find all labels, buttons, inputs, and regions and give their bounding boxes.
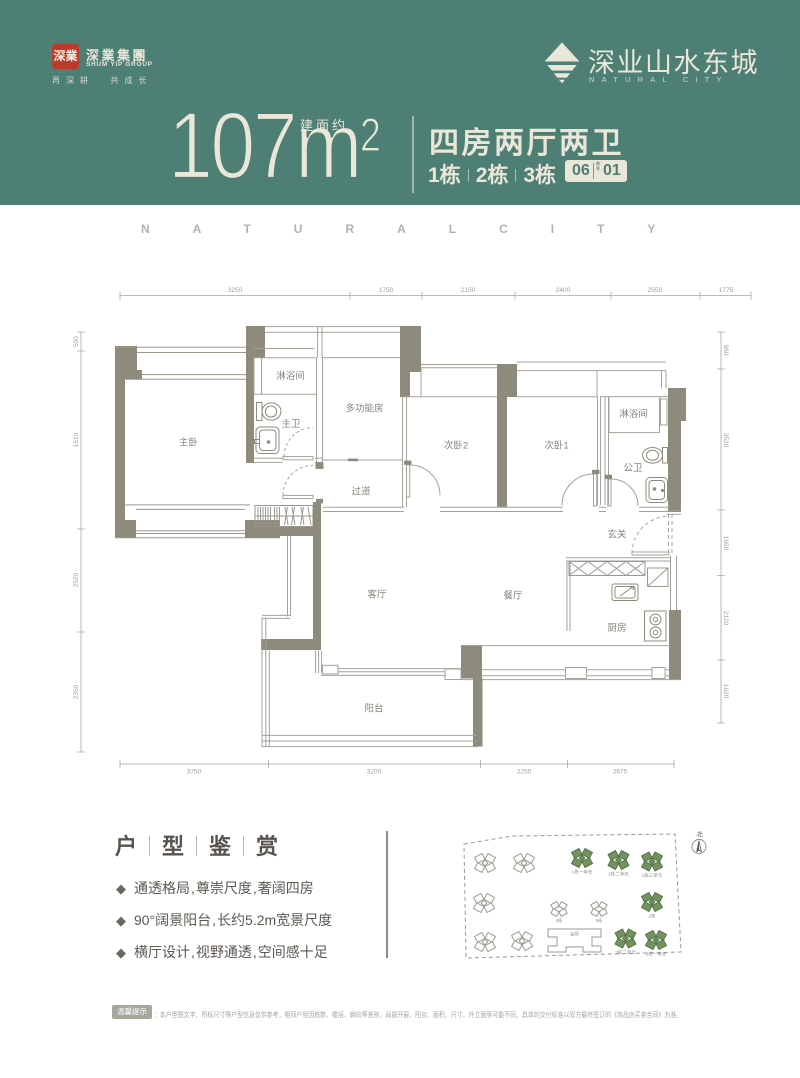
svg-text:3栋二单元: 3栋二单元 (615, 949, 636, 956)
svg-text:淋浴间: 淋浴间 (619, 408, 648, 420)
svg-text:2250: 2250 (517, 769, 532, 776)
svg-text:次卧2: 次卧2 (444, 440, 468, 452)
svg-text:阳台: 阳台 (364, 703, 383, 715)
svg-text:2350: 2350 (73, 684, 80, 699)
svg-text:1775: 1775 (719, 287, 734, 294)
svg-text:3520: 3520 (722, 433, 729, 448)
svg-text:2栋: 2栋 (648, 913, 656, 920)
svg-text:3栋一单元: 3栋一单元 (646, 951, 667, 958)
svg-text:过道: 过道 (351, 486, 371, 498)
svg-text:1650: 1650 (722, 536, 729, 551)
svg-text:3250: 3250 (228, 287, 243, 294)
svg-text:1栋二单元: 1栋二单元 (608, 871, 629, 878)
svg-text:2520: 2520 (73, 572, 80, 587)
svg-text:多功能房: 多功能房 (345, 403, 383, 415)
svg-text:1750: 1750 (379, 287, 394, 294)
svg-text:淋浴间: 淋浴间 (276, 370, 305, 382)
svg-text:公卫: 公卫 (623, 463, 643, 474)
svg-text:主卧: 主卧 (179, 437, 199, 449)
svg-text:2550: 2550 (648, 287, 663, 294)
svg-text:北: 北 (696, 830, 705, 839)
svg-text:次卧1: 次卧1 (544, 440, 568, 452)
svg-text:1510: 1510 (73, 432, 80, 447)
svg-text:4栋: 4栋 (555, 917, 563, 924)
svg-text:500: 500 (73, 336, 80, 347)
svg-text:客厅: 客厅 (367, 589, 387, 601)
svg-text:2675: 2675 (613, 769, 628, 776)
svg-text:5栋: 5栋 (595, 917, 603, 924)
svg-text:3750: 3750 (187, 769, 202, 776)
svg-text:厨房: 厨房 (607, 622, 626, 634)
svg-text:主卫: 主卫 (281, 418, 301, 430)
svg-text:餐厅: 餐厅 (503, 590, 523, 602)
svg-text:会所: 会所 (570, 931, 579, 938)
svg-text:2150: 2150 (461, 287, 476, 294)
svg-text:960: 960 (722, 345, 729, 356)
svg-text:1栋一单元: 1栋一单元 (572, 869, 593, 876)
svg-text:1栋三单元: 1栋三单元 (642, 872, 663, 879)
svg-text:1620: 1620 (722, 684, 729, 699)
svg-text:2400: 2400 (556, 287, 571, 294)
svg-text:2120: 2120 (722, 611, 729, 626)
svg-text:玄关: 玄关 (607, 529, 627, 541)
svg-text:3200: 3200 (367, 769, 382, 776)
